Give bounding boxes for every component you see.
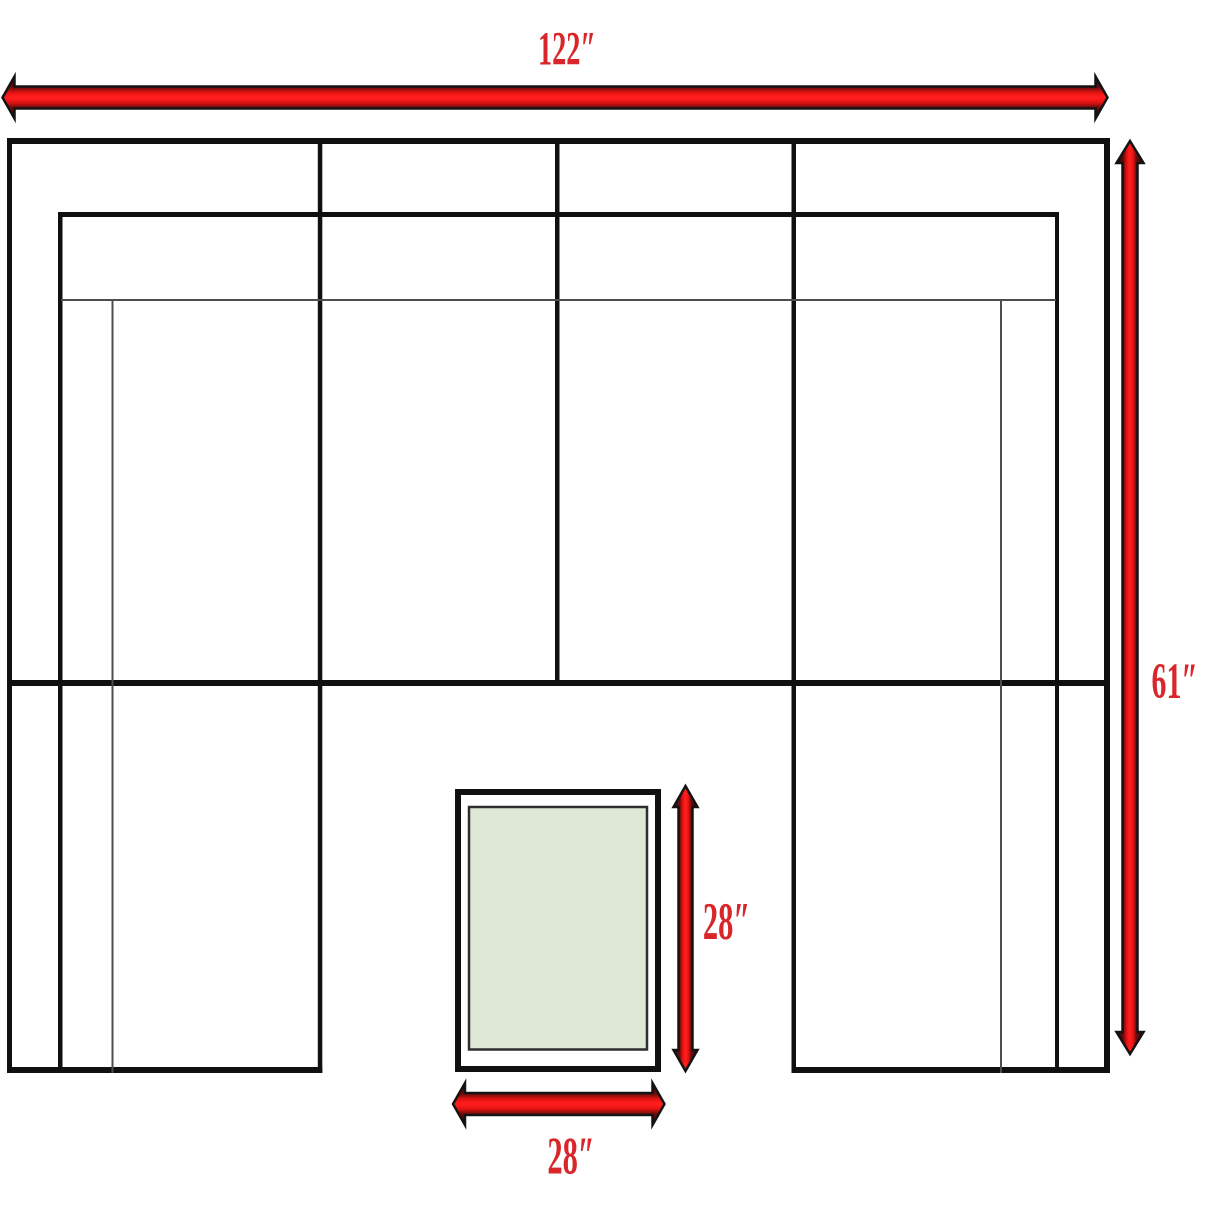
svg-text:122″: 122″: [538, 22, 596, 76]
svg-text:28″: 28″: [703, 892, 750, 951]
svg-text:28″: 28″: [547, 1127, 594, 1186]
svg-text:61″: 61″: [1152, 654, 1198, 710]
